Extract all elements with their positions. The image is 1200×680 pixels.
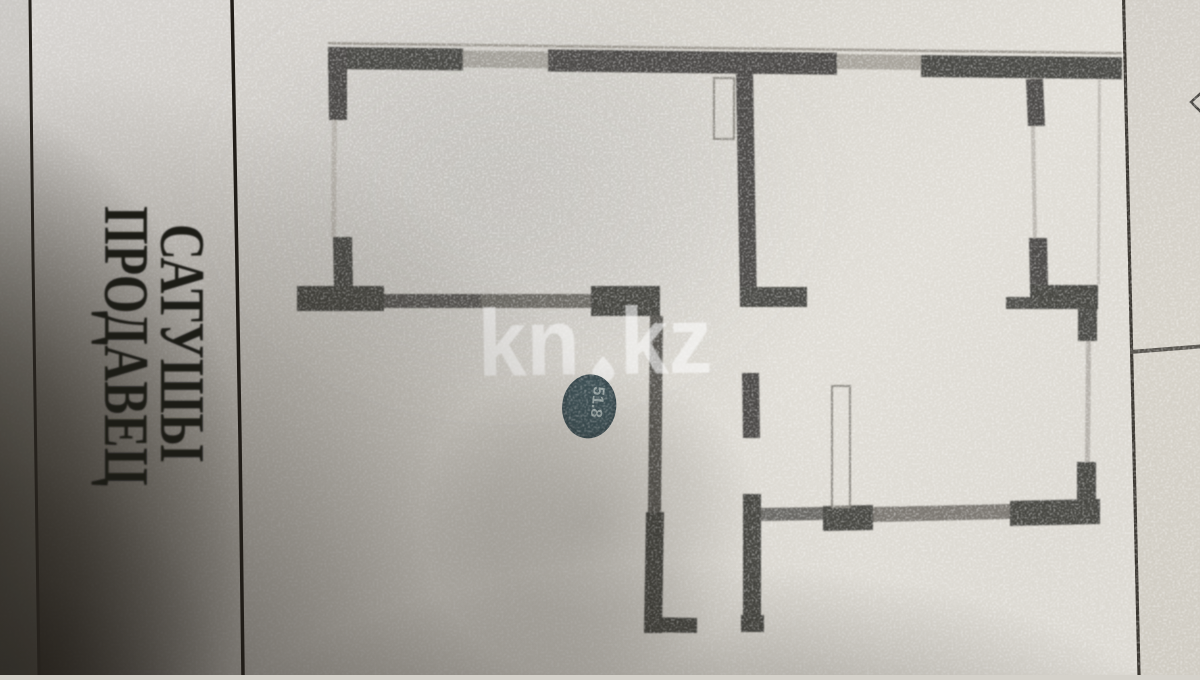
svg-text:ПРОДАВЕЦ: ПРОДАВЕЦ (91, 206, 161, 486)
